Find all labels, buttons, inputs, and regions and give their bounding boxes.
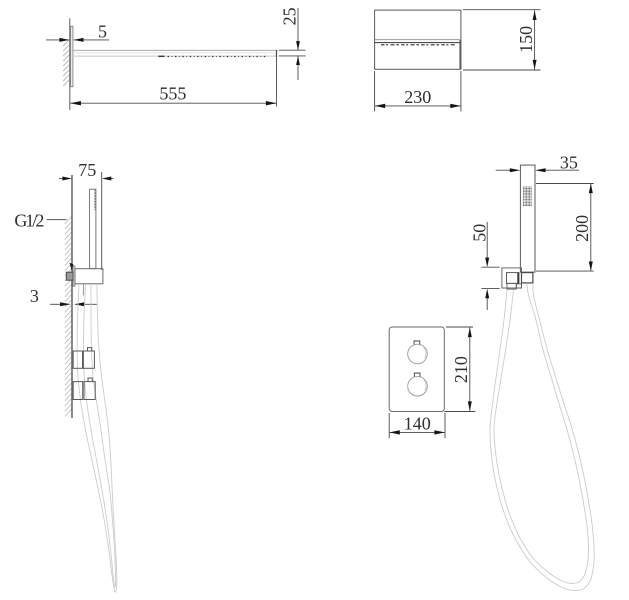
svg-text:230: 230	[404, 87, 431, 107]
svg-text:210: 210	[451, 356, 471, 383]
svg-text:3: 3	[30, 286, 39, 306]
svg-text:35: 35	[560, 152, 578, 172]
svg-text:G1/2: G1/2	[14, 210, 44, 230]
svg-text:140: 140	[404, 414, 431, 434]
svg-text:50: 50	[469, 224, 489, 242]
svg-text:555: 555	[159, 84, 186, 104]
svg-text:75: 75	[78, 160, 96, 180]
svg-text:150: 150	[516, 26, 536, 53]
svg-text:5: 5	[98, 21, 107, 41]
svg-text:200: 200	[572, 215, 592, 242]
svg-text:25: 25	[280, 7, 300, 25]
